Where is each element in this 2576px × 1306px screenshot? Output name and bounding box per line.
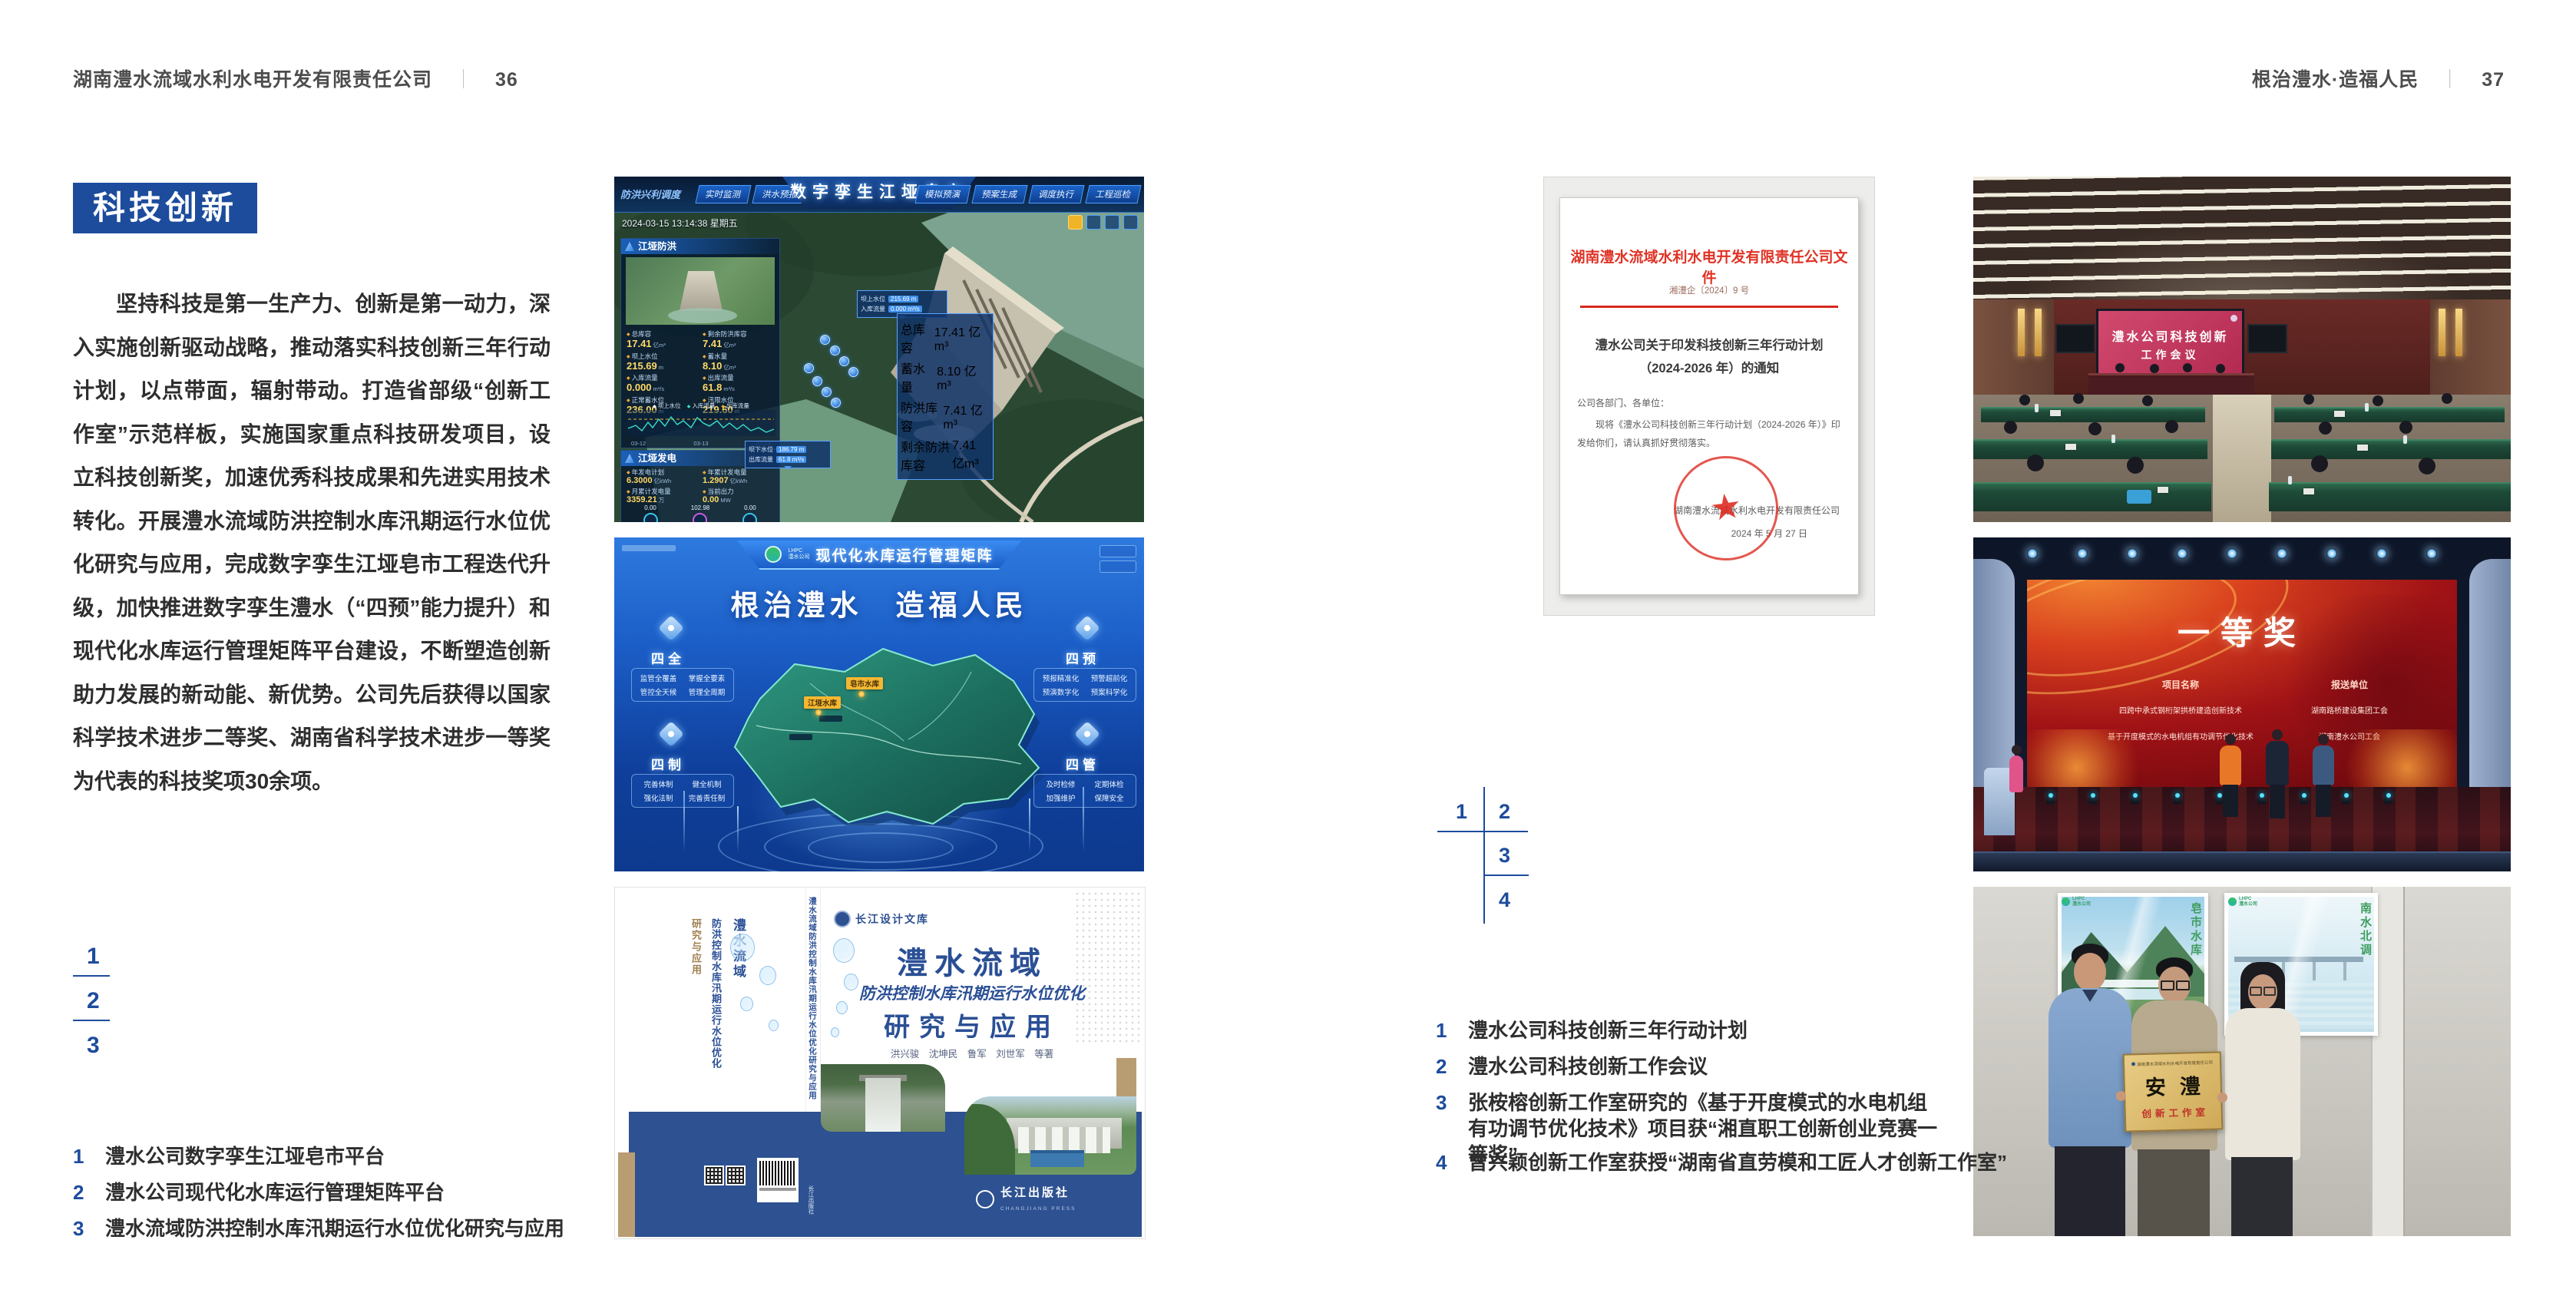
- stat-cell: 月累计发电量3359.21万: [627, 487, 699, 505]
- group-item: 掌握全要素: [683, 673, 730, 683]
- water-drop-decoration: [759, 966, 776, 985]
- paper: [2334, 411, 2345, 417]
- moving-head-light: [2088, 791, 2097, 804]
- gauge: 0.00: [742, 504, 757, 522]
- stat-cell: 年累计发电量1.2907亿kWh: [703, 468, 775, 486]
- user-icon: [1068, 215, 1083, 230]
- caption-text: 曾兴颖创新工作室获授“湖南省直劳模和工匠人才创新工作室”: [1468, 1151, 2007, 1174]
- downstream-tooltip: 坝下水位186.79 m 出库流量61.8 m³/s: [745, 441, 831, 468]
- caption-number: 4: [1436, 1150, 1450, 1176]
- caption-text: 澧水公司数字孪生江垭皂市平台: [105, 1145, 385, 1168]
- attendee-head: [2004, 421, 2017, 434]
- screen-skyline-glow: [2334, 729, 2457, 787]
- gauge: 0.00: [643, 504, 658, 522]
- figure-innovation-meeting-photo: 澧水公司科技创新 工作会议: [1973, 177, 2511, 522]
- group-item: 预案科学化: [1086, 686, 1133, 697]
- caption-left-3: 3澧水流域防洪控制水库汛期运行水位优化研究与应用: [73, 1216, 564, 1242]
- caption-number: 3: [73, 1216, 87, 1242]
- document-red-rule: [1580, 306, 1838, 308]
- attendee-head: [2088, 422, 2101, 435]
- group-item: 预警超前化: [1086, 673, 1133, 683]
- attendee-head: [2373, 395, 2383, 406]
- caption-text: 澧水公司科技创新三年行动计划: [1468, 1019, 1748, 1042]
- attendee-head: [2142, 395, 2153, 406]
- back-title-line: 防洪控制水库汛期运行水位优化: [709, 918, 723, 1099]
- moving-head-light: [2046, 791, 2055, 804]
- document-salutation: 公司各部门、各单位：: [1577, 396, 1841, 410]
- group-item: 加强维护: [1037, 792, 1084, 803]
- plaque-subtitle: 创新工作室: [2125, 1103, 2221, 1120]
- figure-marker-2: 2: [87, 990, 100, 1013]
- column-header-project: 项目名称: [2096, 678, 2265, 691]
- figure-digital-twin-dashboard: 防洪兴利调度 实时监测 洪水预报 防洪预警 数字孪生江垭皂市 模拟预演 预案生成…: [614, 177, 1144, 522]
- stage-light: [2177, 548, 2187, 559]
- group-icon-sizhi: [658, 721, 684, 747]
- speaker-head: [2150, 364, 2159, 373]
- figure-marker-divider: [73, 1020, 110, 1021]
- desk-row: [2271, 439, 2511, 459]
- speaker-head: [2183, 363, 2192, 372]
- group-panel-siguan: 及时检修定期体检 加强维护保障安全: [1033, 774, 1136, 808]
- fullscreen-button-chip: [1100, 545, 1136, 557]
- page-number-right: 37: [2482, 69, 2505, 91]
- stat-cell: 剩余防洪库容7.41亿m³: [703, 329, 775, 349]
- watershed-map: [703, 610, 1056, 825]
- moving-head-light: [2342, 791, 2350, 804]
- group-item: 保障安全: [1086, 792, 1133, 803]
- desk-row: [2269, 482, 2511, 511]
- moving-head-light: [2384, 791, 2392, 804]
- submitting-unit: 湖南路桥建设集团工会: [2288, 704, 2411, 716]
- spine-title: 澧水流域防洪控制水库汛期运行水位优化研究与应用: [807, 897, 818, 1100]
- body-paragraph: 坚持科技是第一生产力、创新是第一动力，深入实施创新驱动战略，推动落实科技创新三年…: [73, 283, 551, 804]
- figure-award-ceremony-photo: 一等奖 项目名称 报送单位 四跨中承式钢桁架拱桥建造创新技术 湖南路桥建设集团工…: [1973, 537, 2511, 871]
- map-pin-icon: [839, 356, 849, 366]
- paper: [2065, 444, 2076, 450]
- group-item: 预报精准化: [1037, 673, 1084, 683]
- flood-control-panel: 江垭防洪 总库容17.41亿m³ 剩余防洪库容7.41亿m³ 坝上水位215.6…: [620, 238, 780, 448]
- attendee-head: [2319, 422, 2332, 435]
- wall-lamp: [2018, 309, 2025, 356]
- caption-text: 澧水流域防洪控制水库汛期运行水位优化研究与应用: [105, 1217, 564, 1240]
- group-panel-siyu: 预报精准化预警超前化 预演数字化预案科学化: [1033, 668, 1136, 702]
- group-item: 监管全覆盖: [635, 673, 682, 683]
- group-item: 管控全天候: [635, 686, 682, 697]
- moving-head-light: [2300, 791, 2308, 804]
- x-tick: 03-12: [631, 440, 646, 447]
- tan-block-back: [618, 1152, 635, 1237]
- stat-cell: 当前出力0.00MW: [703, 487, 775, 505]
- group-title: 四预: [1066, 648, 1100, 667]
- cover-photo-canyon-dam: [821, 1064, 945, 1132]
- company-logo-text: LHPC澧水公司: [788, 548, 809, 560]
- plaque-name: 安澧: [2125, 1069, 2221, 1101]
- stage-light: [2127, 548, 2138, 559]
- stage-light: [2426, 548, 2437, 559]
- menu-button-chip: [1100, 560, 1136, 573]
- attendee-head: [2311, 455, 2328, 472]
- marker-diagram-line: [1437, 831, 1528, 832]
- figure-marker-1: 1: [87, 945, 100, 968]
- group-item: 及时检修: [1037, 779, 1084, 789]
- document-sheet: 湖南澧水流域水利水电开发有限责任公司文件 湘澧企〔2024〕9 号 澧水公司关于…: [1559, 197, 1859, 595]
- poster-logo: LHPC澧水公司: [2062, 897, 2091, 907]
- map-pin-icon: [822, 387, 832, 397]
- dashboard-corner-label: 防洪兴利调度: [620, 187, 680, 201]
- caption-number: 1: [73, 1144, 87, 1170]
- stat-cell: 坝上水位215.69m: [627, 352, 699, 372]
- page-header-right: 根治澧水·造福人民｜37: [2252, 64, 2505, 92]
- group-item: 健全机制: [683, 779, 730, 789]
- attendee-head: [2303, 394, 2314, 405]
- marker-diagram-line: [1483, 875, 1529, 876]
- figure-plaque-photo: LHPC澧水公司 皂市水库 LHPC澧水公司 南水北调: [1973, 887, 2511, 1236]
- cover-photo-spillway-dam: [964, 1096, 1136, 1175]
- wall-lamp: [2439, 309, 2445, 356]
- map-pin-icon: [858, 691, 865, 697]
- stage-light: [2277, 548, 2287, 559]
- page-number-left: 36: [495, 69, 518, 91]
- speaker-head: [2115, 363, 2125, 372]
- column-header-unit: 报送单位: [2280, 678, 2419, 691]
- desk-row: [2274, 407, 2505, 422]
- water-drop-decoration: [769, 1020, 779, 1031]
- marker-diagram-line: [1483, 787, 1485, 924]
- gauge: 102.98: [691, 504, 709, 522]
- document-title-line2: （2024-2026 年）的通知: [1560, 358, 1858, 376]
- stage-light: [2326, 548, 2337, 559]
- figure-marker-3: 3: [87, 1034, 100, 1057]
- document-body-line2: 发给你们，请认真抓好贯彻落实。: [1577, 436, 1841, 450]
- stage-frame-right: [2469, 559, 2511, 824]
- map-pin-icon: [830, 346, 840, 355]
- group-item: 完善责任制: [683, 792, 730, 803]
- book-title-tail: 研究与应用: [830, 1006, 1114, 1043]
- caption-number: 1: [1436, 1018, 1450, 1044]
- moving-head-light: [2257, 791, 2266, 804]
- header-divider: ｜: [454, 69, 474, 91]
- dam-aerial-thumbnail: [626, 257, 775, 325]
- wall-tv-right: [2247, 324, 2287, 353]
- header-divider: ｜: [2440, 69, 2460, 91]
- attendee-head: [2442, 393, 2452, 404]
- map-pin-icon: [848, 367, 858, 377]
- group-panel-siquan: 监管全覆盖掌握全要素 管控全天候管理全周期: [631, 668, 734, 702]
- caption-left-1: 1澧水公司数字孪生江垭皂市平台: [73, 1144, 385, 1170]
- screen-title-line1: 澧水公司科技创新: [2098, 326, 2242, 345]
- paper: [2050, 410, 2061, 416]
- dashboard-toolbar-icons: [1068, 215, 1138, 230]
- platform-title: 现代化水库运行管理矩阵: [815, 544, 993, 565]
- back-title-line: 研究与应用: [689, 918, 703, 1099]
- caption-left-2: 2澧水公司现代化水库运行管理矩阵平台: [73, 1180, 445, 1206]
- dashboard-tabs-right: 模拟预演 预案生成 调度执行 工程巡检: [917, 185, 1139, 203]
- attendee-head: [2399, 421, 2412, 434]
- desk-row: [1973, 482, 2211, 511]
- legend-item: 出库流量: [721, 402, 749, 410]
- attendee-head: [2027, 455, 2044, 471]
- group-title: 四制: [651, 754, 685, 773]
- layers-icon: [1086, 215, 1101, 230]
- power-stats-grid: 年发电计划6.3000亿kWh 年累计发电量1.2907亿kWh 月累计发电量3…: [627, 468, 775, 504]
- caption-right-1: 1澧水公司科技创新三年行动计划: [1436, 1018, 1748, 1044]
- reservoir-info-panel: 总库容17.41 亿m³ 蓄水量8.10 亿m³ 防洪库容7.41 亿m³ 剩余…: [897, 313, 994, 480]
- company-logo-icon: [765, 546, 782, 563]
- header-motto: 根治澧水·造福人民: [2252, 69, 2419, 91]
- map-minilabel: [819, 716, 842, 722]
- hand: [2116, 1091, 2126, 1101]
- figure-marker-divider: [73, 975, 110, 977]
- qr-code: [704, 1165, 724, 1185]
- stat-cell: 入库流量0.000m³/s: [627, 373, 699, 393]
- x-tick: 03-13: [693, 440, 708, 447]
- ring-decoration: [808, 832, 954, 863]
- wall-lamp: [2035, 309, 2042, 356]
- group-title: 四管: [1066, 754, 1100, 773]
- caption-number: 2: [1436, 1054, 1450, 1080]
- stat-cell: 年发电计划6.3000亿kWh: [627, 468, 699, 486]
- plaque-company-line: 湖南澧水流域水利水电开发有限责任公司: [2125, 1059, 2220, 1067]
- stage-apron: [1973, 851, 2511, 871]
- magazine-spread: 湖南澧水流域水利水电开发有限责任公司｜36 科技创新 坚持科技是第一生产力、创新…: [0, 0, 2576, 1306]
- figure-marker-2: 2: [1499, 802, 1510, 822]
- figure-book-cover: 澧水流域 防洪控制水库汛期运行水位优化 研究与应用 澧水流域防洪控制水库汛期运行…: [614, 887, 1146, 1239]
- company-logo-icon: [2228, 898, 2237, 906]
- attendee-head: [2019, 395, 2030, 405]
- map-minilabel: [789, 734, 812, 740]
- attendee-head: [2419, 458, 2435, 474]
- award-title: 一等奖: [2027, 607, 2457, 654]
- hand: [2217, 1093, 2227, 1103]
- series-badge-text: 长江设计文库: [855, 911, 929, 927]
- innovation-workshop-plaque: 湖南澧水流域水利水电开发有限责任公司 安澧 创新工作室: [2123, 1051, 2224, 1132]
- paper: [2357, 445, 2368, 451]
- attendee-head: [2073, 393, 2084, 404]
- map-label-zaoshi: 皂市水库: [846, 677, 883, 689]
- tab-realtime-monitor: 实时监测: [695, 185, 751, 203]
- wall-tv-left: [2055, 324, 2095, 353]
- screen-logo-icon: [2230, 315, 2237, 322]
- flood-panel-title: 江垭防洪: [621, 239, 779, 254]
- water-drop-decoration: [740, 997, 753, 1011]
- water-drop-decoration: [730, 934, 755, 961]
- caption-text: 澧水公司现代化水库运行管理矩阵平台: [105, 1181, 445, 1204]
- attendee-head: [2127, 457, 2144, 474]
- figure-official-document: 湖南澧水流域水利水电开发有限责任公司文件 湘澧企〔2024〕9 号 澧水公司关于…: [1543, 177, 1875, 616]
- attendee-head: [2165, 420, 2178, 433]
- figure-marker-3: 3: [1499, 845, 1510, 866]
- map-pin-icon: [831, 398, 841, 408]
- settings-icon: [1123, 215, 1138, 230]
- section-title-badge: 科技创新: [73, 183, 257, 233]
- wall-lamp: [2455, 309, 2462, 356]
- moving-head-light: [2131, 791, 2139, 804]
- desk-row: [1973, 439, 2207, 459]
- book-authors: 洪兴骏 沈坤民 鲁军 刘世军 等著: [830, 1046, 1114, 1060]
- figure-matrix-platform: LHPC澧水公司 现代化水库运行管理矩阵 根治澧水 造福人民 皂市水库 江垭水库…: [614, 537, 1144, 871]
- group-item: 预演数字化: [1037, 686, 1084, 697]
- publisher-logo-icon: [976, 1190, 994, 1208]
- poster-logo: LHPC澧水公司: [2228, 897, 2257, 907]
- caption-right-4: 4曾兴颖创新工作室获授“湖南省直劳模和工匠人才创新工作室”: [1436, 1150, 2007, 1176]
- map-pin-icon: [815, 709, 822, 716]
- group-item: 强化法制: [635, 792, 682, 803]
- stat-cell: 出库流量61.8m³/s: [703, 373, 775, 393]
- stage-light: [2027, 548, 2038, 559]
- caption-text: 澧水公司科技创新工作会议: [1468, 1055, 1708, 1078]
- header-company-name: 湖南澧水流域水利水电开发有限责任公司: [73, 69, 432, 91]
- tab-plan-generate: 预案生成: [971, 185, 1027, 203]
- rostrum-table: [2088, 373, 2254, 397]
- project-name: 四跨中承式钢桁架拱桥建造创新技术: [2073, 704, 2288, 716]
- chart-plot-area: [627, 410, 775, 436]
- legend-item: 坝上水位: [653, 402, 681, 410]
- timestamp-placeholder: [622, 545, 676, 551]
- legend-item: 入库流量: [687, 402, 716, 410]
- page-header-left: 湖南澧水流域水利水电开发有限责任公司｜36: [73, 64, 518, 92]
- tissue-box: [2127, 490, 2151, 504]
- paper: [2303, 488, 2314, 494]
- official-seal-icon: [1667, 449, 1785, 567]
- spine-publisher: 长江出版社: [807, 1185, 815, 1215]
- map-pin-icon: [812, 376, 822, 386]
- group-title: 四全: [651, 648, 685, 667]
- tab-simulation: 模拟预演: [914, 185, 971, 203]
- screen-skyline-glow: [2027, 729, 2150, 787]
- generator-gauges: 0.00 102.98 0.00: [627, 504, 774, 522]
- led-screen: 一等奖 项目名称 报送单位 四跨中承式钢桁架拱桥建造创新技术 湖南路桥建设集团工…: [2027, 580, 2457, 787]
- screen-title-line2: 工作会议: [2098, 347, 2242, 362]
- group-icon-siguan: [1074, 721, 1100, 747]
- water-bottle: [2365, 403, 2369, 412]
- book-title-sub: 防洪控制水库汛期运行水位优化: [824, 981, 1120, 1004]
- caption-number: 2: [73, 1180, 87, 1206]
- stat-cell: 蓄水量8.10亿m³: [703, 352, 775, 372]
- publisher-logo-icon: [834, 911, 851, 927]
- platform-header: LHPC澧水公司 现代化水库运行管理矩阵: [737, 541, 1021, 570]
- document-number: 湘澧企〔2024〕9 号: [1560, 284, 1858, 296]
- paper: [2158, 487, 2168, 493]
- dashboard-top-bar: 防洪兴利调度 实时监测 洪水预报 防洪预警 数字孪生江垭皂市 模拟预演 预案生成…: [614, 177, 1144, 213]
- map-label-jiangya: 江垭水库: [804, 696, 841, 709]
- series-badge: 长江设计文库: [834, 911, 929, 927]
- moving-head-light: [2173, 791, 2181, 804]
- group-item: 完善体制: [635, 779, 682, 789]
- publisher-name: 长江出版社: [1000, 1185, 1070, 1199]
- ceiling: [1973, 177, 2511, 306]
- dashboard-timestamp: 2024-03-15 13:14:38 星期五: [622, 217, 738, 230]
- side-wall-left: [1973, 299, 2054, 395]
- stage-light: [2077, 548, 2088, 559]
- water-bottle: [2111, 435, 2115, 443]
- publisher-name-en: CHANGJIANG PRESS: [1000, 1206, 1076, 1212]
- center-aisle: [2213, 395, 2271, 522]
- document-title-line1: 澧水公司关于印发科技创新三年行动计划: [1560, 335, 1858, 353]
- stage-light: [2227, 548, 2237, 559]
- stat-cell: 总库容17.41亿m³: [627, 329, 699, 349]
- company-logo-icon: [2062, 898, 2070, 906]
- barcode: [757, 1158, 799, 1202]
- tab-dispatch: 调度执行: [1028, 185, 1084, 203]
- tab-inspection: 工程巡检: [1085, 185, 1141, 203]
- group-item: 管理全周期: [683, 686, 730, 697]
- stage-light: [2376, 548, 2387, 559]
- poster-caption: 皂市水库: [2187, 902, 2204, 957]
- speaker-head: [2216, 364, 2225, 373]
- caption-right-2: 2澧水公司科技创新工作会议: [1436, 1054, 1708, 1080]
- map-pin-icon: [820, 335, 830, 345]
- publisher-block: 长江出版社 CHANGJIANG PRESS: [976, 1184, 1076, 1214]
- water-bottle: [2288, 476, 2292, 484]
- figure-marker-1: 1: [1456, 802, 1467, 822]
- water-bottle: [2403, 435, 2407, 444]
- locate-icon: [1105, 215, 1119, 230]
- qr-code: [726, 1165, 746, 1185]
- figure-marker-4: 4: [1499, 890, 1510, 911]
- poster-caption: 南水北调: [2357, 902, 2373, 957]
- group-item: 定期体检: [1086, 779, 1133, 789]
- map-pin-icon: [804, 363, 814, 373]
- document-red-header: 湖南澧水流域水利水电开发有限责任公司文件: [1568, 246, 1850, 287]
- book-title-main: 澧水流域: [830, 938, 1114, 983]
- document-body-line1: 现将《澧水公司科技创新三年行动计划（2024-2026 年）》印: [1577, 418, 1841, 431]
- water-bottle: [2035, 404, 2039, 412]
- group-panel-sizhi: 完善体制健全机制 强化法制完善责任制: [631, 774, 734, 808]
